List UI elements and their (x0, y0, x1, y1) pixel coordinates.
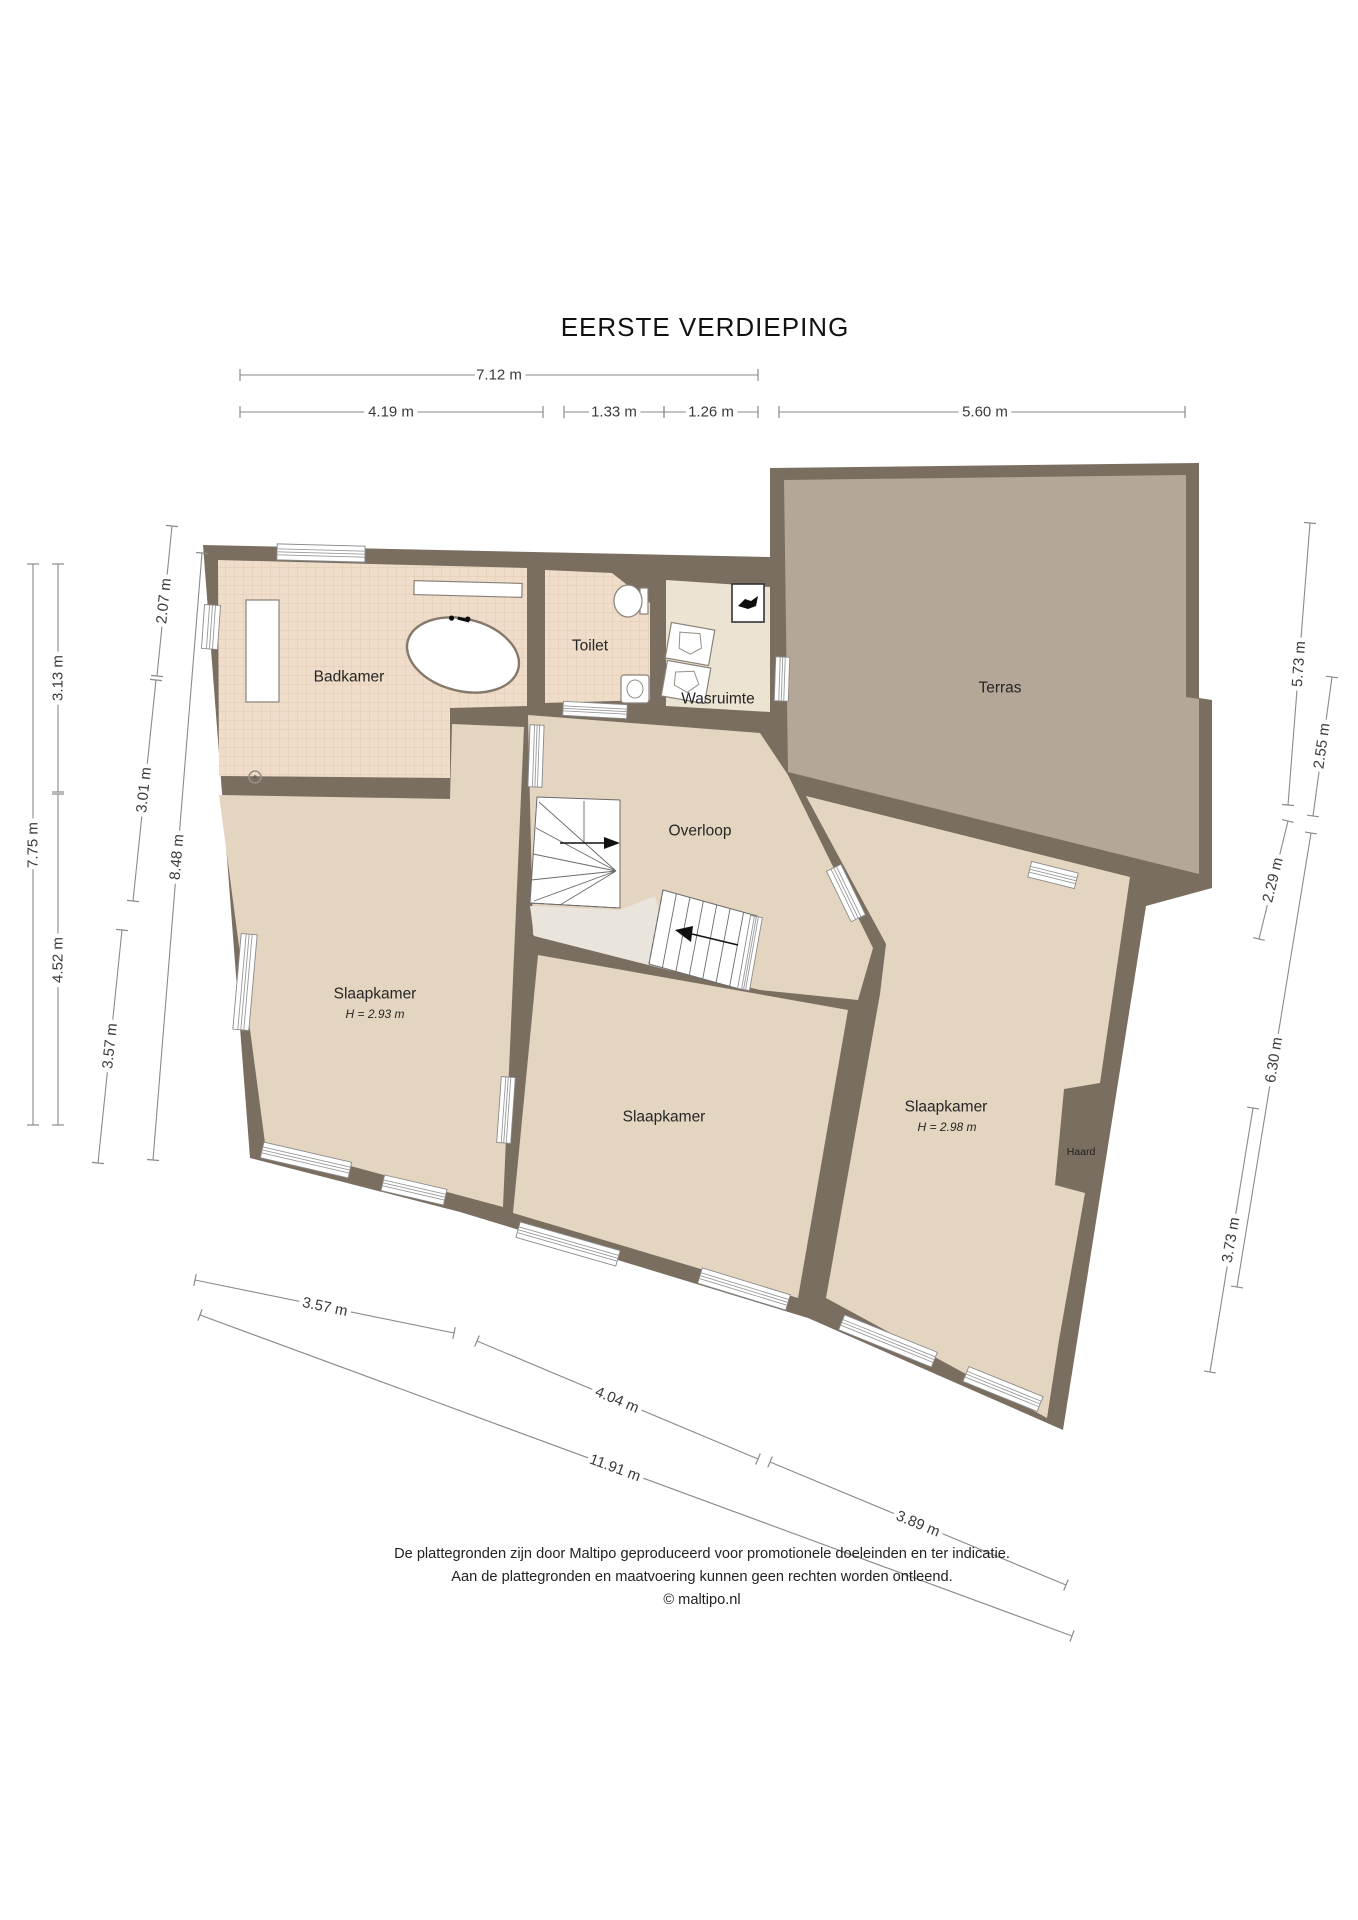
dim-label: 3.13 m (50, 655, 67, 701)
toilet-icon (614, 585, 648, 617)
door-icon (528, 725, 544, 787)
dim-label: 3.89 m (894, 1507, 943, 1540)
footer-line-1: De plattegronden zijn door Maltipo gepro… (394, 1546, 1010, 1562)
footer-line-2: Aan de plattegronden en maatvoering kunn… (451, 1569, 952, 1585)
washbasin-counter-icon (414, 581, 522, 598)
room-label-toilet: Toilet (572, 638, 609, 655)
floorplan-page: EERSTE VERDIEPING (0, 0, 1358, 1920)
dim-label: 4.04 m (593, 1383, 642, 1416)
dim-label: 1.26 m (688, 404, 734, 421)
room-label-badkamer: Badkamer (314, 669, 385, 686)
dim-label: 3.57 m (301, 1294, 349, 1320)
dim-label: 7.75 m (25, 822, 42, 868)
dimensions-right: 5.73 m 2.55 m 2.29 m 6.30 m 3.73 m (1210, 523, 1334, 1372)
window-icon (277, 544, 365, 562)
dimensions-left: 7.75 m 3.13 m 4.52 m 2.07 m 3.01 m 3.57 … (25, 526, 203, 1163)
dim-label: 4.52 m (50, 937, 67, 983)
dim-label: 5.73 m (1289, 641, 1309, 688)
dim-label: 3.73 m (1219, 1216, 1244, 1264)
room-label-slaapkamer-rechts: Slaapkamer (905, 1099, 988, 1116)
room-label-overloop: Overloop (669, 823, 732, 840)
dim-label: 1.33 m (591, 404, 637, 421)
washer-icon (665, 622, 715, 665)
dimensions-top: 7.12 m 4.19 m 1.33 m 1.26 m 5.60 m (240, 367, 1185, 421)
window-icon (201, 604, 220, 649)
dim-label: 2.29 m (1259, 856, 1287, 905)
dim-label: 6.30 m (1262, 1036, 1286, 1084)
footer-line-3: © maltipo.nl (663, 1592, 740, 1608)
sink-icon (621, 675, 649, 703)
dim-label: 7.12 m (476, 367, 522, 384)
footer-disclaimer: De plattegronden zijn door Maltipo gepro… (394, 1546, 1010, 1608)
stairs-winder-icon (530, 797, 620, 908)
dim-label: 4.19 m (368, 404, 414, 421)
room-label-haard: Haard (1067, 1146, 1096, 1158)
room-label-wasruimte: Wasruimte (681, 691, 755, 708)
room-label-slaapkamer-links: Slaapkamer (334, 986, 417, 1003)
room-label-slaapkamer-midden: Slaapkamer (623, 1109, 706, 1126)
room-height-slaapkamer-rechts: H = 2.98 m (917, 1120, 976, 1134)
dim-label: 2.55 m (1310, 722, 1333, 770)
dim-label: 3.57 m (99, 1022, 121, 1069)
room-label-terras: Terras (978, 680, 1021, 697)
shower-cabinet-icon (246, 600, 279, 702)
dim-label: 5.60 m (962, 404, 1008, 421)
door-icon (563, 701, 628, 718)
dim-label: 11.91 m (587, 1451, 643, 1485)
dim-label: 3.01 m (133, 766, 155, 813)
page-title: EERSTE VERDIEPING (561, 312, 850, 342)
door-icon (774, 657, 790, 701)
room-height-slaapkamer-links: H = 2.93 m (345, 1007, 404, 1021)
dim-label: 8.48 m (167, 833, 188, 880)
dim-label: 2.07 m (153, 577, 175, 624)
boiler-icon (732, 584, 764, 622)
floorplan-canvas: EERSTE VERDIEPING (0, 0, 1358, 1920)
